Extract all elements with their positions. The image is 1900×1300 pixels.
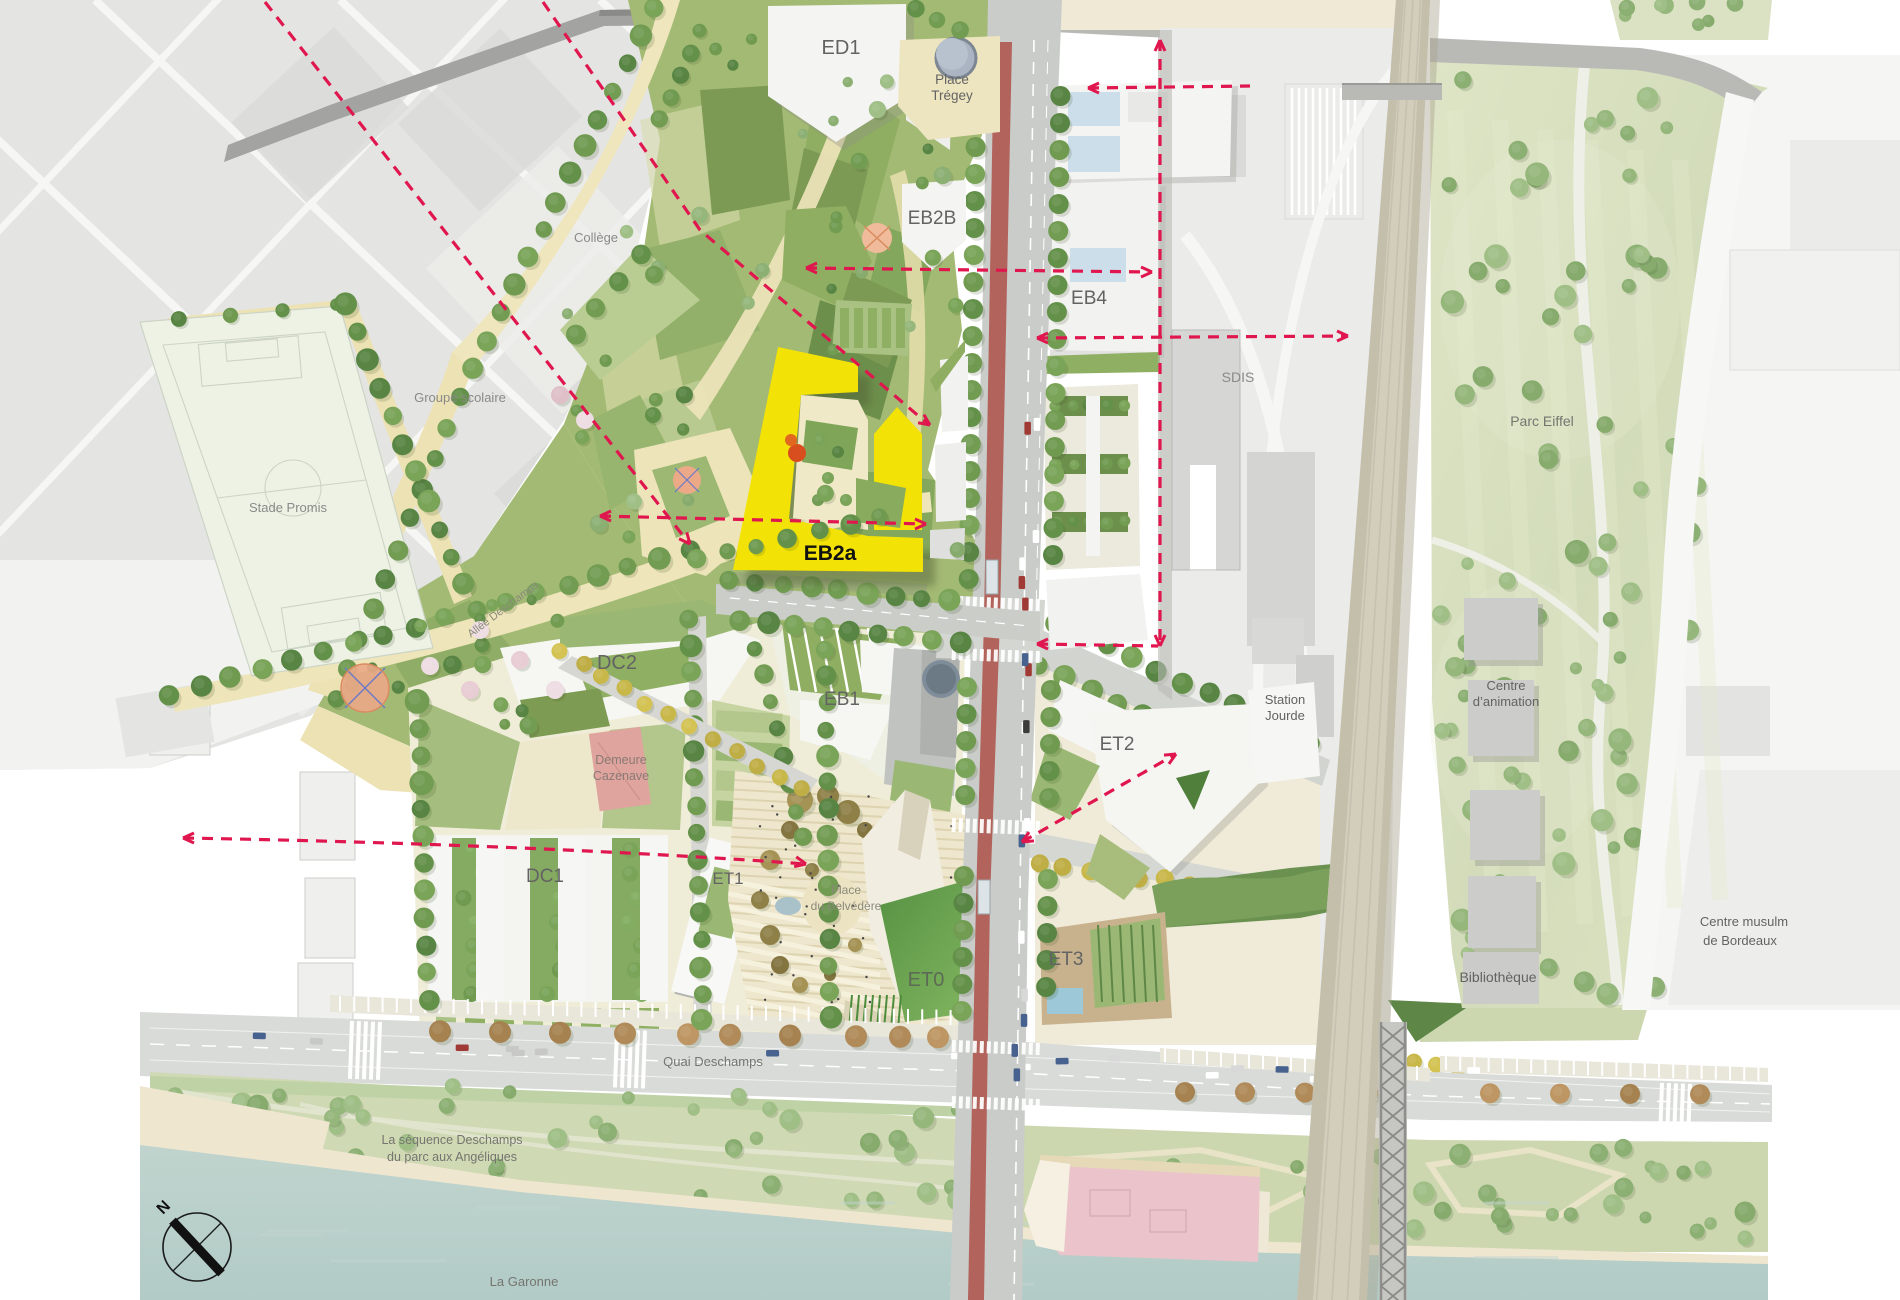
svg-text:Centre musulm: Centre musulm [1700, 914, 1788, 929]
svg-text:de Bordeaux: de Bordeaux [1703, 933, 1777, 948]
svg-text:Groupe scolaire: Groupe scolaire [414, 390, 506, 405]
svg-text:du parc aux Angéliques: du parc aux Angéliques [387, 1150, 517, 1164]
svg-text:Trégey: Trégey [931, 88, 973, 103]
svg-text:DC1: DC1 [526, 866, 564, 887]
svg-text:DC2: DC2 [597, 652, 637, 674]
svg-text:La séquence Deschamps: La séquence Deschamps [381, 1133, 522, 1147]
svg-text:Demeure: Demeure [595, 753, 646, 767]
svg-text:Place: Place [935, 72, 969, 87]
svg-text:du Belvédère: du Belvédère [811, 899, 882, 913]
svg-text:Station: Station [1265, 692, 1305, 707]
svg-text:Collège: Collège [574, 230, 618, 245]
svg-text:d’animation: d’animation [1473, 694, 1540, 709]
svg-text:EB1: EB1 [824, 689, 860, 710]
svg-text:Jourde: Jourde [1265, 708, 1305, 723]
svg-text:Cazenave: Cazenave [593, 769, 649, 783]
svg-text:EB4: EB4 [1071, 288, 1107, 309]
svg-text:ET1: ET1 [712, 869, 743, 888]
svg-text:ET0: ET0 [908, 969, 945, 991]
svg-text:Quai Deschamps: Quai Deschamps [663, 1054, 763, 1069]
svg-text:La Garonne: La Garonne [490, 1274, 559, 1289]
svg-text:ET2: ET2 [1100, 734, 1135, 755]
svg-text:Stade Promis: Stade Promis [249, 500, 328, 515]
svg-text:Place: Place [831, 883, 861, 897]
svg-text:ED1: ED1 [822, 37, 861, 59]
svg-text:Centre: Centre [1486, 678, 1525, 693]
svg-text:ET3: ET3 [1049, 949, 1084, 970]
svg-text:EB2a: EB2a [804, 542, 857, 565]
svg-text:EB2B: EB2B [908, 208, 957, 229]
svg-text:Parc Eiffel: Parc Eiffel [1510, 413, 1574, 429]
svg-text:Bibliothèque: Bibliothèque [1459, 969, 1536, 985]
svg-text:SDIS: SDIS [1222, 369, 1255, 385]
